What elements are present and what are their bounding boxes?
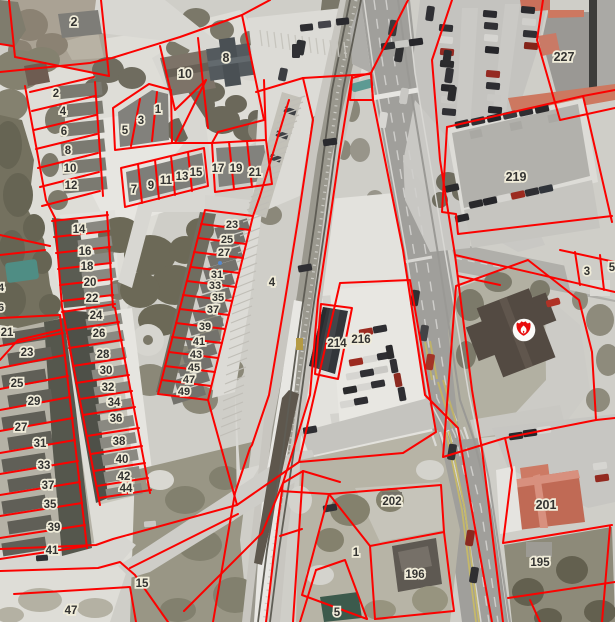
svg-text:214: 214 (327, 338, 347, 350)
svg-text:37: 37 (207, 304, 219, 316)
svg-text:8: 8 (65, 145, 72, 157)
svg-text:15: 15 (190, 167, 203, 179)
svg-text:21: 21 (1, 327, 14, 339)
svg-text:49: 49 (178, 386, 190, 398)
svg-text:8: 8 (223, 51, 230, 65)
svg-text:3: 3 (584, 266, 590, 278)
svg-text:44: 44 (120, 483, 133, 495)
svg-text:20: 20 (84, 277, 97, 289)
svg-text:34: 34 (108, 397, 121, 409)
svg-text:32: 32 (102, 382, 115, 394)
svg-text:5: 5 (122, 125, 129, 137)
svg-text:35: 35 (44, 499, 57, 511)
svg-text:23: 23 (226, 219, 238, 231)
svg-text:42: 42 (118, 471, 131, 483)
svg-text:9: 9 (148, 180, 154, 192)
svg-text:10: 10 (178, 67, 192, 81)
svg-text:22: 22 (86, 293, 99, 305)
svg-text:23: 23 (21, 347, 34, 359)
svg-text:38: 38 (113, 436, 126, 448)
svg-text:5: 5 (334, 607, 341, 619)
svg-text:41: 41 (46, 545, 59, 557)
svg-text:196: 196 (405, 569, 424, 581)
svg-text:216: 216 (351, 334, 370, 346)
svg-text:40: 40 (116, 454, 129, 466)
svg-text:2: 2 (53, 88, 59, 100)
svg-text:5: 5 (609, 262, 615, 274)
svg-text:201: 201 (536, 498, 557, 512)
svg-text:17: 17 (212, 163, 225, 175)
svg-text:4: 4 (60, 106, 67, 118)
svg-text:28: 28 (97, 349, 110, 361)
svg-text:37: 37 (42, 480, 55, 492)
svg-text:7: 7 (131, 184, 137, 196)
svg-text:35: 35 (212, 292, 224, 304)
svg-text:13: 13 (176, 171, 189, 183)
svg-text:47: 47 (183, 374, 195, 386)
svg-text:14: 14 (73, 224, 86, 236)
svg-text:19: 19 (230, 163, 243, 175)
svg-text:29: 29 (28, 396, 41, 408)
svg-text:33: 33 (38, 460, 51, 472)
svg-text:39: 39 (48, 522, 61, 534)
svg-text:24: 24 (90, 310, 103, 322)
svg-text:6: 6 (61, 126, 67, 138)
svg-text:195: 195 (530, 557, 550, 569)
svg-text:27: 27 (218, 247, 230, 259)
svg-text:219: 219 (506, 170, 527, 184)
svg-text:27: 27 (15, 422, 28, 434)
svg-text:31: 31 (34, 438, 47, 450)
svg-text:21: 21 (249, 167, 262, 179)
svg-text:45: 45 (188, 362, 200, 374)
svg-text:4: 4 (269, 277, 276, 289)
svg-text:10: 10 (64, 163, 77, 175)
svg-text:26: 26 (93, 328, 106, 340)
svg-text:25: 25 (11, 378, 24, 390)
svg-text:16: 16 (79, 246, 92, 258)
svg-text:18: 18 (81, 261, 94, 273)
svg-text:1: 1 (155, 104, 162, 116)
svg-text:2: 2 (71, 15, 78, 29)
svg-text:43: 43 (190, 349, 202, 361)
svg-text:1: 1 (353, 547, 360, 559)
svg-text:3: 3 (138, 115, 144, 127)
svg-text:30: 30 (100, 365, 113, 377)
svg-text:11: 11 (160, 175, 173, 187)
svg-text:36: 36 (110, 413, 123, 425)
svg-text:33: 33 (209, 280, 221, 292)
svg-text:41: 41 (193, 336, 205, 348)
svg-text:47: 47 (65, 605, 78, 617)
svg-text:227: 227 (554, 50, 575, 64)
svg-text:202: 202 (382, 496, 401, 508)
svg-text:39: 39 (199, 321, 211, 333)
svg-text:15: 15 (136, 578, 149, 590)
svg-text:12: 12 (65, 180, 78, 192)
svg-text:6: 6 (0, 302, 4, 314)
svg-text:25: 25 (221, 234, 233, 246)
